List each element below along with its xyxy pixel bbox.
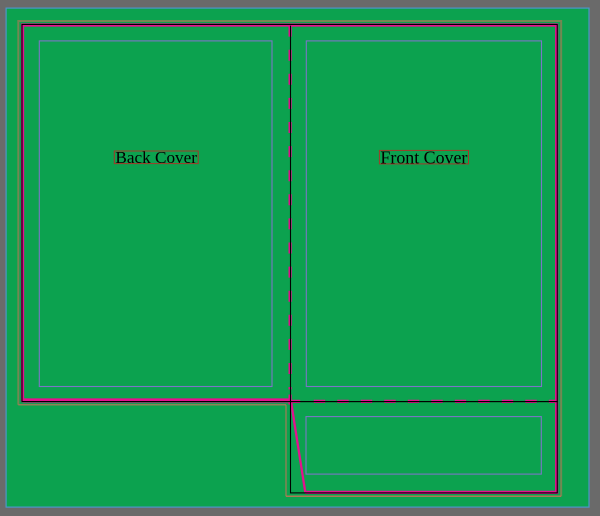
svg-text:Back Cover: Back Cover [115,148,197,167]
svg-text:Front Cover: Front Cover [380,147,467,167]
